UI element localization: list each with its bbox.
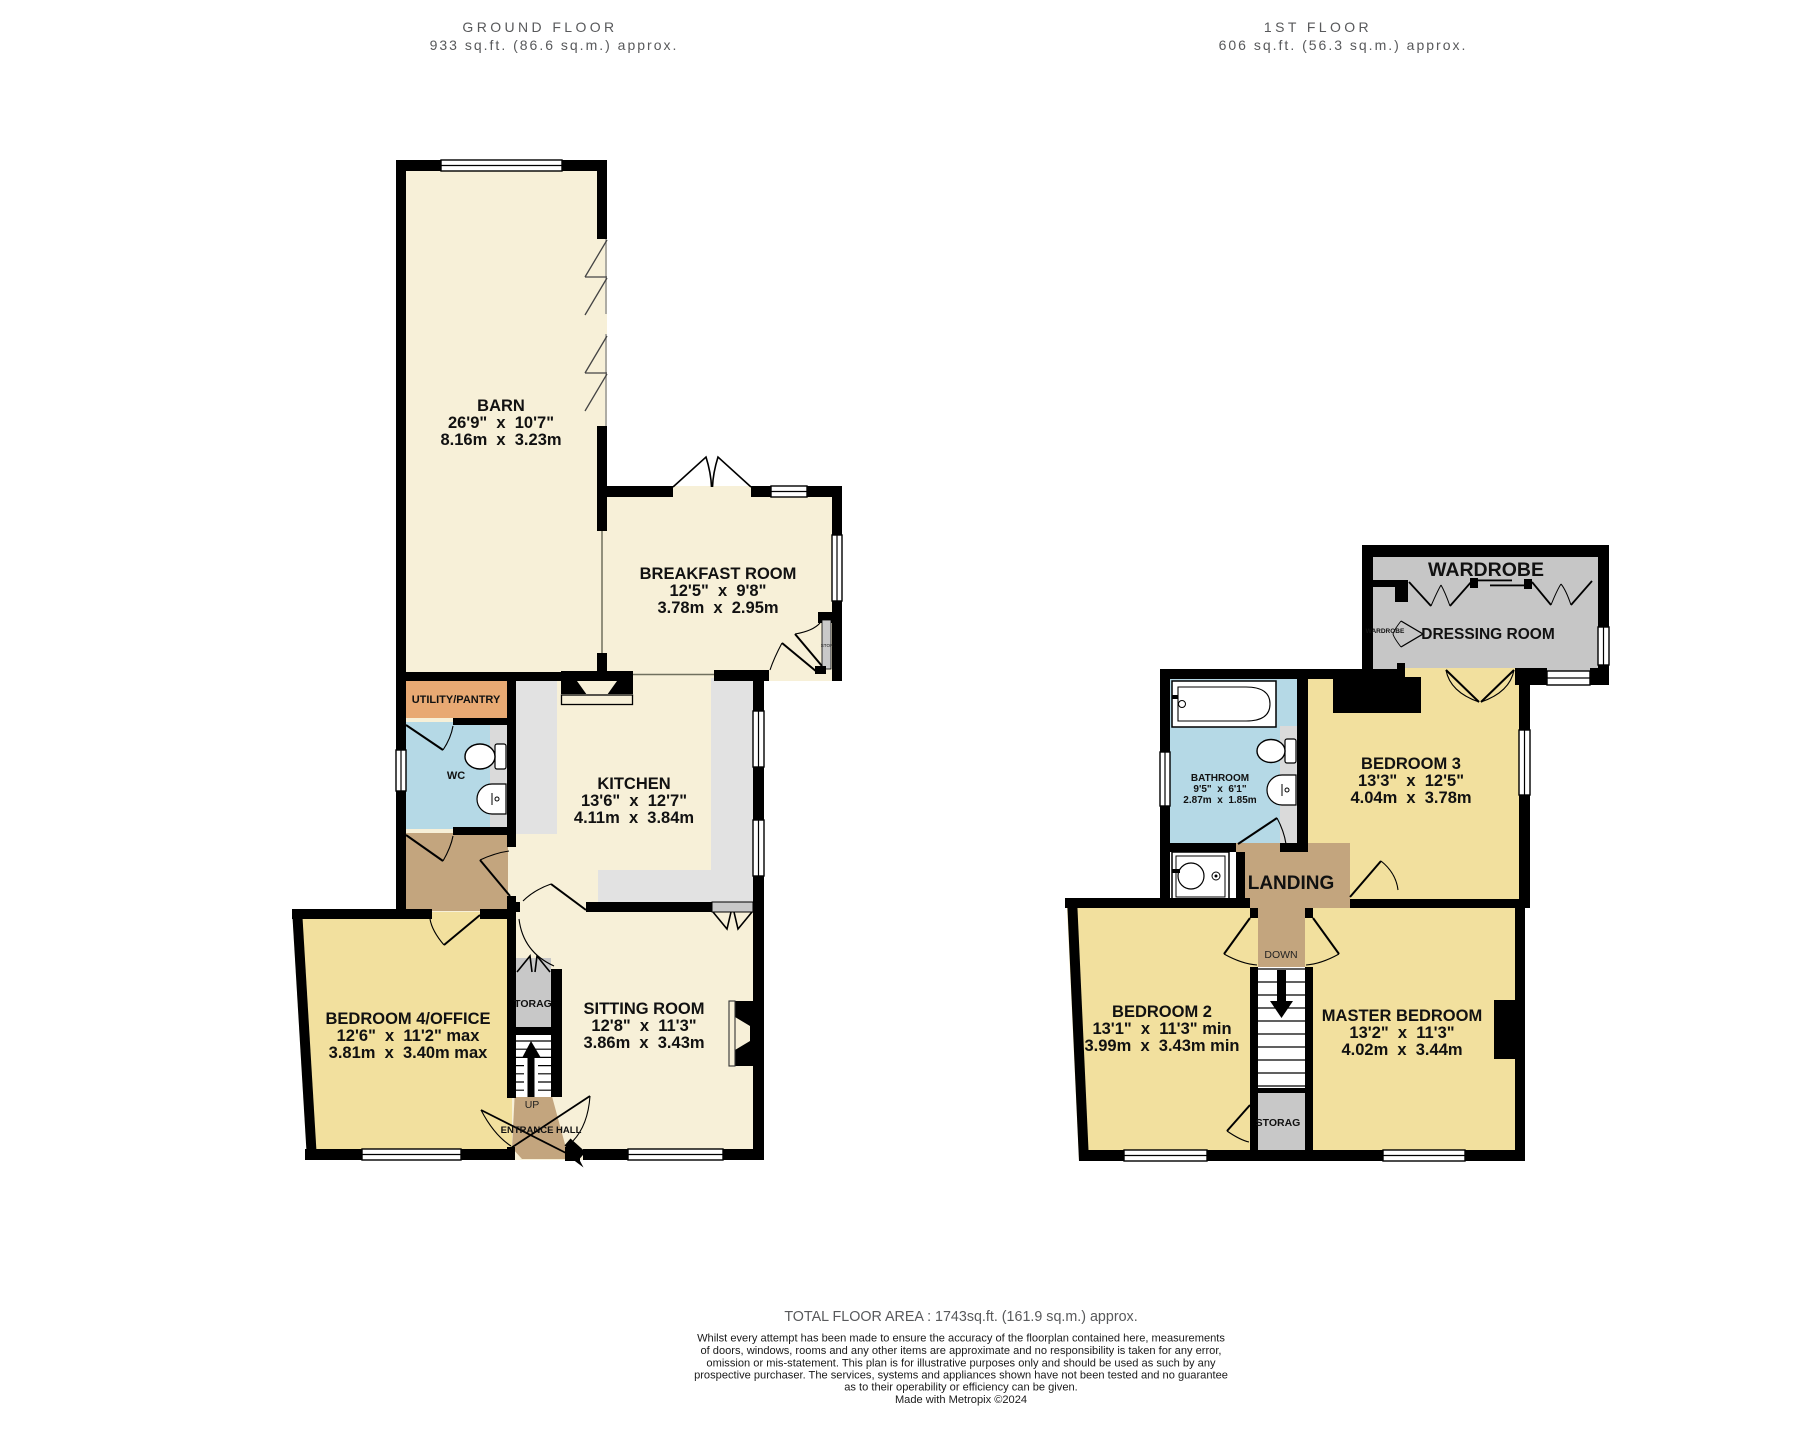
svg-text:prospective purchaser. The ser: prospective purchaser. The services, sys… xyxy=(694,1370,1228,1382)
svg-text:SITTING ROOM: SITTING ROOM xyxy=(584,1000,705,1018)
svg-text:WC: WC xyxy=(447,770,465,782)
svg-text:26'9" x 10'7": 26'9" x 10'7" xyxy=(448,414,554,432)
svg-text:STOR: STOR xyxy=(821,643,834,648)
svg-text:omission or mis-statement. Thi: omission or mis-statement. This plan is … xyxy=(706,1358,1216,1370)
svg-text:3.86m x 3.43m: 3.86m x 3.43m xyxy=(583,1034,704,1052)
svg-text:WARDROBE: WARDROBE xyxy=(1428,559,1544,581)
svg-text:3.99m x 3.43m min: 3.99m x 3.43m min xyxy=(1084,1037,1239,1055)
svg-text:4.04m x 3.78m: 4.04m x 3.78m xyxy=(1350,789,1471,807)
svg-text:1ST FLOOR: 1ST FLOOR xyxy=(1264,19,1372,35)
svg-text:12'5" x 9'8": 12'5" x 9'8" xyxy=(670,582,767,600)
svg-text:KITCHEN: KITCHEN xyxy=(597,775,670,793)
svg-text:ENTRANCE HALL: ENTRANCE HALL xyxy=(501,1125,582,1136)
svg-text:BREAKFAST ROOM: BREAKFAST ROOM xyxy=(640,565,797,583)
svg-text:12'8" x 11'3": 12'8" x 11'3" xyxy=(591,1017,696,1035)
svg-text:UTILITY/PANTRY: UTILITY/PANTRY xyxy=(412,694,501,706)
svg-text:UP: UP xyxy=(525,1099,540,1111)
svg-text:GROUND FLOOR: GROUND FLOOR xyxy=(462,19,617,35)
svg-text:12'6" x 11'2" max: 12'6" x 11'2" max xyxy=(337,1027,481,1045)
svg-text:3.81m x 3.40m max: 3.81m x 3.40m max xyxy=(329,1044,489,1062)
svg-text:BEDROOM 2: BEDROOM 2 xyxy=(1112,1003,1212,1021)
svg-text:13'3" x 12'5": 13'3" x 12'5" xyxy=(1358,772,1464,790)
svg-text:4.02m x 3.44m: 4.02m x 3.44m xyxy=(1341,1041,1462,1059)
svg-text:LANDING: LANDING xyxy=(1248,873,1335,894)
svg-text:TORAG: TORAG xyxy=(514,998,552,1010)
svg-text:13'6" x 12'7": 13'6" x 12'7" xyxy=(581,792,687,810)
svg-text:MASTER BEDROOM: MASTER BEDROOM xyxy=(1322,1007,1482,1025)
svg-text:13'2" x 11'3": 13'2" x 11'3" xyxy=(1349,1024,1454,1042)
svg-text:Made with Metropix ©2024: Made with Metropix ©2024 xyxy=(895,1394,1027,1406)
svg-text:BARN: BARN xyxy=(477,397,525,415)
svg-text:TOTAL FLOOR AREA : 1743sq.ft.: TOTAL FLOOR AREA : 1743sq.ft. (161.9 sq.… xyxy=(784,1309,1137,1325)
svg-text:933 sq.ft. (86.6 sq.m.) approx: 933 sq.ft. (86.6 sq.m.) approx. xyxy=(430,37,679,53)
svg-text:606 sq.ft. (56.3 sq.m.) approx: 606 sq.ft. (56.3 sq.m.) approx. xyxy=(1219,37,1468,53)
svg-text:8.16m x 3.23m: 8.16m x 3.23m xyxy=(440,431,561,449)
svg-text:2.87m x 1.85m: 2.87m x 1.85m xyxy=(1183,795,1256,806)
svg-text:13'1" x 11'3" min: 13'1" x 11'3" min xyxy=(1092,1020,1231,1038)
svg-text:WARDROBE: WARDROBE xyxy=(1366,628,1405,635)
svg-text:9'5" x 6'1": 9'5" x 6'1" xyxy=(1193,784,1246,795)
svg-text:3.78m x 2.95m: 3.78m x 2.95m xyxy=(657,599,778,617)
svg-text:4.11m x 3.84m: 4.11m x 3.84m xyxy=(574,809,694,827)
svg-text:of doors, windows, rooms and a: of doors, windows, rooms and any other i… xyxy=(700,1345,1221,1357)
svg-text:as to their operability or eff: as to their operability or efficiency ca… xyxy=(844,1382,1078,1394)
svg-text:BEDROOM 4/OFFICE: BEDROOM 4/OFFICE xyxy=(325,1010,490,1028)
svg-text:Whilst every attempt has been: Whilst every attempt has been made to en… xyxy=(697,1333,1225,1345)
svg-text:STORAG: STORAG xyxy=(1256,1117,1301,1129)
svg-text:BATHROOM: BATHROOM xyxy=(1191,773,1249,784)
svg-text:BEDROOM 3: BEDROOM 3 xyxy=(1361,755,1461,773)
svg-text:DOWN: DOWN xyxy=(1264,949,1297,961)
svg-text:DRESSING ROOM: DRESSING ROOM xyxy=(1421,626,1554,643)
